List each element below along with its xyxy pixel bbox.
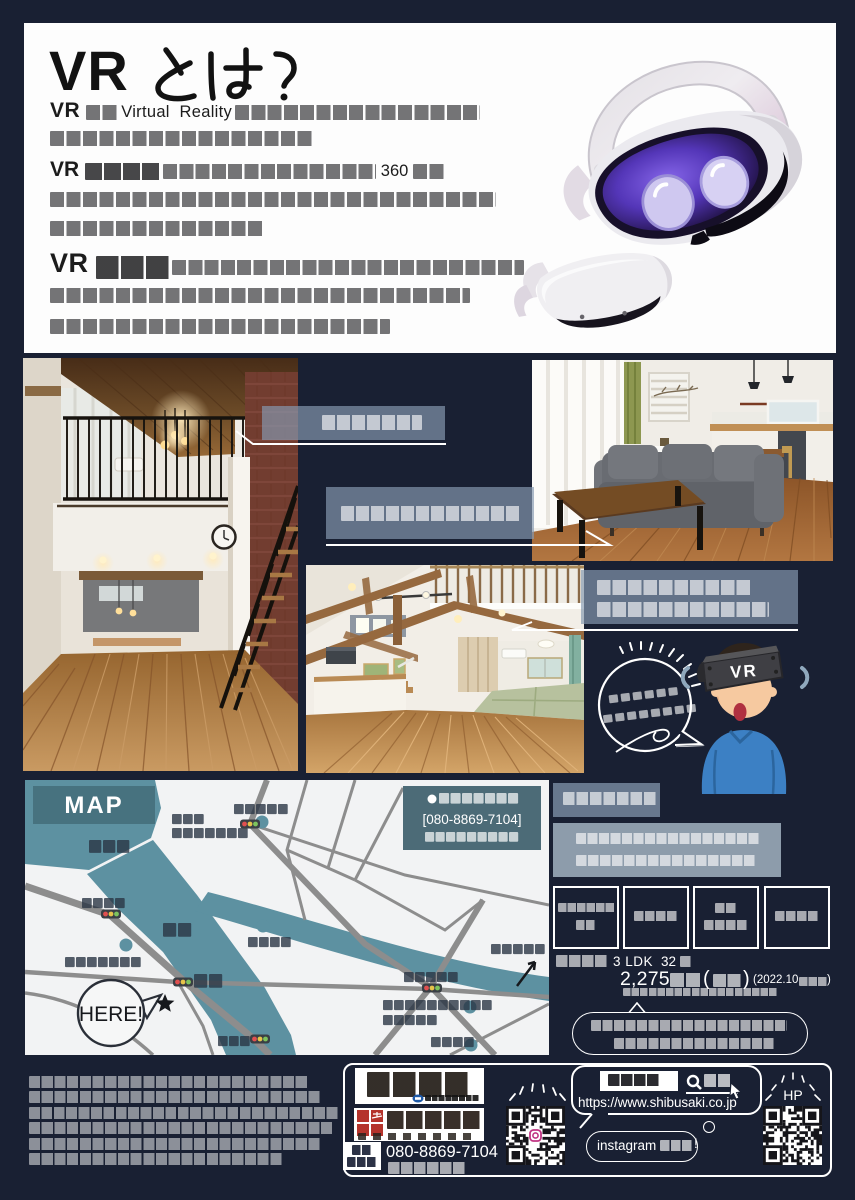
svg-text:HP: HP bbox=[783, 1087, 802, 1103]
svg-text:HERE!: HERE! bbox=[79, 1003, 143, 1026]
svg-text:MAP: MAP bbox=[64, 792, 123, 819]
svg-text:VR: VR bbox=[730, 661, 759, 682]
svg-text:[080-8869-7104]: [080-8869-7104] bbox=[422, 812, 521, 827]
